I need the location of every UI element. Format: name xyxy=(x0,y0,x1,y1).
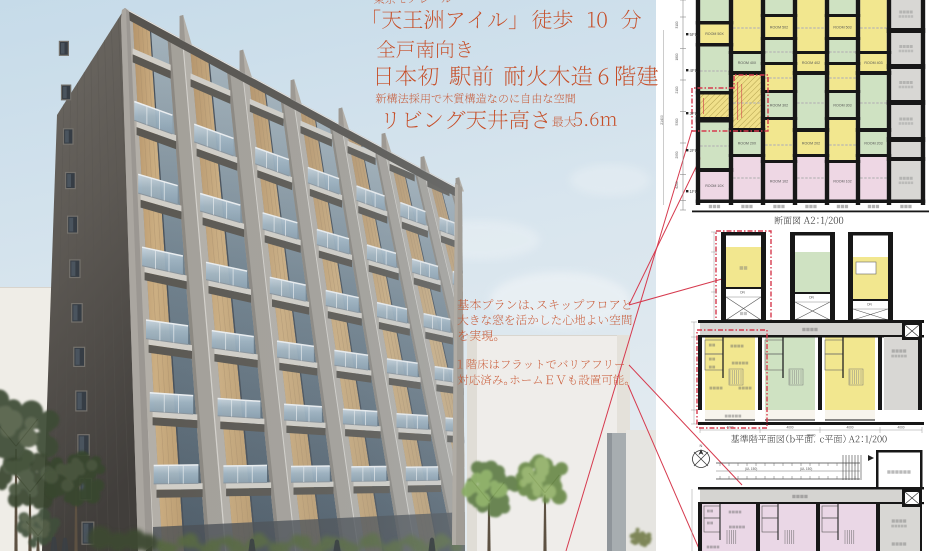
svg-text:ROOM 10X: ROOM 10X xyxy=(705,184,724,188)
svg-text:ROOM 303: ROOM 303 xyxy=(833,103,851,107)
svg-text:2950: 2950 xyxy=(675,151,679,158)
svg-text:ROOM 40X: ROOM 40X xyxy=(738,61,757,65)
svg-text:4000: 4000 xyxy=(786,426,793,430)
svg-text:ROOM 503: ROOM 503 xyxy=(833,25,851,29)
svg-text:DN: DN xyxy=(867,302,872,306)
svg-text:5FL: 5FL xyxy=(690,32,698,37)
svg-text:DN: DN xyxy=(740,290,745,294)
svg-text:ROOM 502: ROOM 502 xyxy=(770,25,788,29)
svg-text:ROOM 102: ROOM 102 xyxy=(770,180,788,184)
svg-text:(UL 150): (UL 150) xyxy=(800,467,812,471)
svg-text:ROOM 50X: ROOM 50X xyxy=(705,32,724,36)
svg-text:1800: 1800 xyxy=(675,53,679,60)
svg-text:ROOM 403: ROOM 403 xyxy=(864,61,882,65)
svg-text:2100: 2100 xyxy=(675,86,679,93)
svg-text:DN: DN xyxy=(809,295,814,299)
svg-text:3FL: 3FL xyxy=(690,111,698,116)
svg-text:5300: 5300 xyxy=(675,118,679,125)
svg-text:(UL 150): (UL 150) xyxy=(745,467,757,471)
svg-text:4000: 4000 xyxy=(846,426,853,430)
svg-text:4FL: 4FL xyxy=(690,68,698,73)
svg-text:ROOM 102: ROOM 102 xyxy=(833,180,851,184)
svg-text:4000: 4000 xyxy=(897,426,904,430)
svg-text:ROOM 402: ROOM 402 xyxy=(802,61,820,65)
svg-text:ROOM 202: ROOM 202 xyxy=(802,141,820,145)
svg-text:ROOM 20X: ROOM 20X xyxy=(738,141,757,145)
svg-text:2FL: 2FL xyxy=(690,148,698,153)
svg-text:N: N xyxy=(700,443,703,448)
svg-text:ROOM 302: ROOM 302 xyxy=(770,103,788,107)
svg-text:1FL: 1FL xyxy=(690,189,698,194)
svg-text:6200: 6200 xyxy=(675,181,679,188)
svg-text:3100: 3100 xyxy=(675,21,679,28)
svg-text:ROOM 203: ROOM 203 xyxy=(864,141,882,145)
